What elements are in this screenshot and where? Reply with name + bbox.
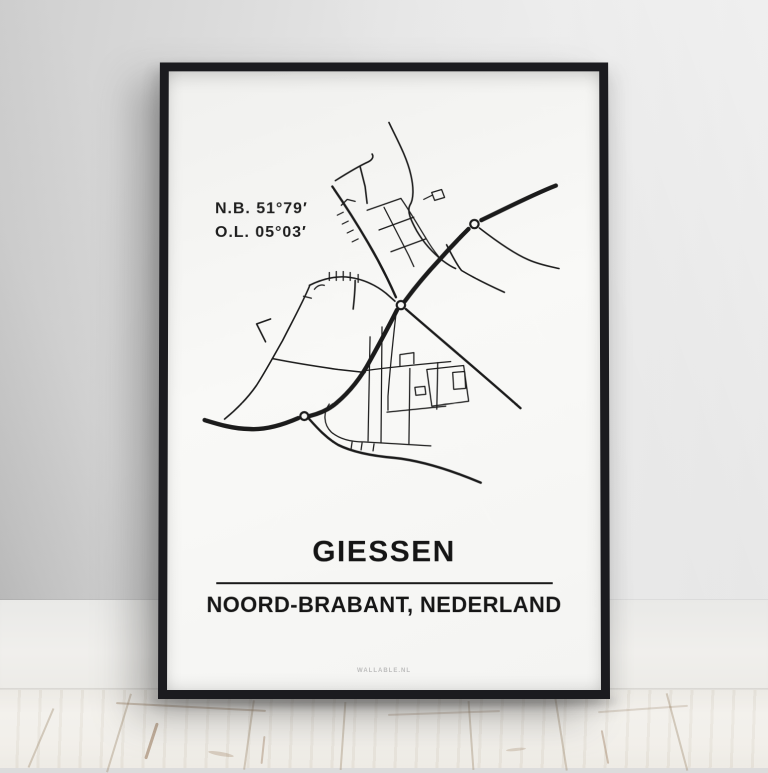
map-road — [360, 167, 367, 203]
map-road — [309, 277, 395, 301]
map-street — [437, 363, 438, 410]
map-street — [325, 404, 431, 446]
map-driveway-ticks — [337, 212, 358, 242]
poster-subtitle: NOORD-BRABANT, NEDERLAND — [167, 592, 601, 618]
map-street — [401, 198, 439, 256]
map-street — [409, 369, 410, 444]
city-map-graphic — [185, 84, 586, 521]
map-road — [481, 186, 556, 221]
map-road — [272, 359, 365, 373]
map-road — [309, 310, 397, 416]
map-road — [353, 280, 355, 309]
roundabout-icon — [300, 412, 308, 420]
map-street — [391, 239, 426, 252]
map-block — [415, 386, 426, 395]
map-street — [379, 217, 414, 230]
poster-frame: N.B. 51°79′ O.L. 05°03′ — [158, 62, 610, 699]
map-road — [406, 309, 521, 408]
roundabout-icon — [470, 220, 478, 228]
map-block — [453, 371, 466, 389]
poster-frame-wrap: N.B. 51°79′ O.L. 05°03′ — [158, 62, 610, 699]
map-road — [257, 319, 271, 342]
map-minor-roads — [225, 123, 560, 420]
map-street — [368, 337, 370, 441]
map-street — [424, 190, 445, 201]
map-road — [389, 123, 456, 269]
title-divider — [216, 582, 552, 584]
map-road — [309, 419, 481, 483]
map-street-grid — [303, 190, 468, 451]
roundabout-icon — [397, 301, 405, 309]
map-road — [205, 418, 299, 429]
map-road — [335, 154, 373, 181]
brand-label: WALLABLE.NL — [167, 668, 601, 674]
map-road — [405, 229, 469, 301]
poster-title: GIESSEN — [167, 535, 600, 568]
poster-paper: N.B. 51°79′ O.L. 05°03′ — [167, 71, 601, 690]
map-block — [400, 353, 414, 367]
map-road — [479, 228, 559, 269]
map-road — [225, 286, 310, 419]
map-driveway-ticks — [351, 442, 374, 451]
